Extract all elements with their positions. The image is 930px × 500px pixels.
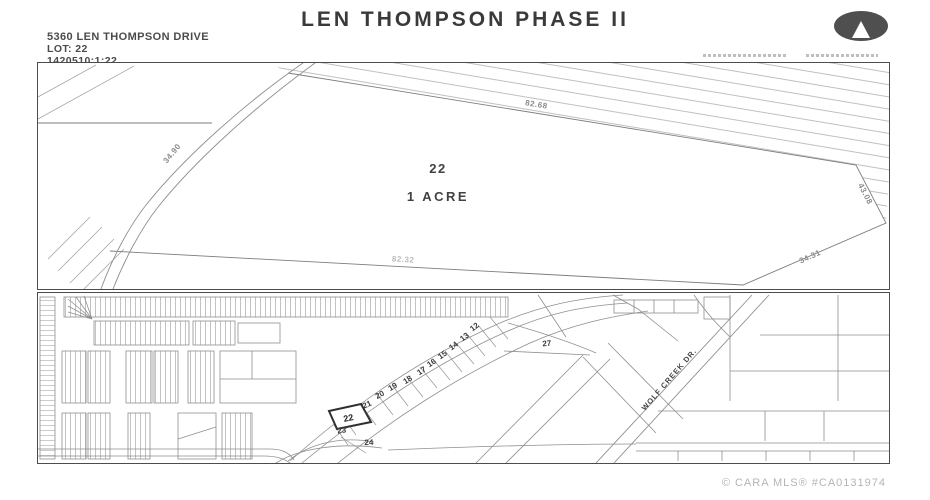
plat-svg: 82.68 43.08 34.31 82.32 34.90 22 1 ACRE bbox=[38, 63, 889, 289]
lot-plat-drawing: 82.68 43.08 34.31 82.32 34.90 22 1 ACRE bbox=[37, 62, 890, 290]
logo-triangle-icon bbox=[852, 21, 870, 38]
map-lot-number: 24 bbox=[364, 438, 374, 447]
map-lot-number: 19 bbox=[387, 380, 400, 393]
brokerage-mountain-logo-icon bbox=[834, 11, 888, 41]
numbered-lot-street bbox=[276, 295, 648, 463]
map-lot-number: 14 bbox=[447, 339, 460, 352]
map-lot-numbers: 12 13 14 15 16 17 18 19 20 21 22 23 24 bbox=[337, 320, 482, 447]
property-address: 5360 LEN THOMPSON DRIVE bbox=[47, 31, 209, 43]
property-lot: LOT: 22 bbox=[47, 43, 209, 55]
subdivision-location-map: 12 13 14 15 16 17 18 19 20 21 22 23 24 2… bbox=[37, 292, 890, 464]
dimension-left-curve: 34.90 bbox=[161, 142, 182, 165]
map-svg: 12 13 14 15 16 17 18 19 20 21 22 23 24 2… bbox=[38, 293, 889, 463]
illegible-fine-print-right bbox=[806, 54, 878, 57]
map-lot-number: 13 bbox=[458, 330, 471, 343]
dimension-bottom: 82.32 bbox=[392, 254, 415, 264]
mls-watermark: © CARA MLS® #CA0131974 bbox=[722, 477, 886, 489]
map-lot-number: 21 bbox=[361, 399, 373, 411]
map-lot-number: 15 bbox=[436, 348, 449, 361]
road-curve-lines bbox=[101, 63, 315, 289]
plat-lot-area: 1 ACRE bbox=[407, 189, 469, 204]
map-lot-number: 23 bbox=[337, 425, 348, 435]
map-lot-number-27: 27 bbox=[542, 339, 552, 349]
hatch-lines-bottom-left bbox=[48, 217, 124, 289]
map-lot-number-22: 22 bbox=[342, 412, 354, 424]
hatched-area-top-right bbox=[270, 63, 889, 223]
dimension-bottom-right: 34.31 bbox=[798, 248, 822, 265]
plat-document-page: LEN THOMPSON PHASE II 5360 LEN THOMPSON … bbox=[0, 0, 930, 500]
illegible-fine-print-left bbox=[703, 54, 787, 57]
page-title: LEN THOMPSON PHASE II bbox=[0, 8, 930, 32]
map-lot-number: 20 bbox=[374, 388, 387, 400]
street-label-wolf-creek: WOLF CREEK DR. bbox=[640, 346, 699, 412]
wolf-creek-road-lines bbox=[596, 295, 769, 463]
lot-divider-lines bbox=[334, 317, 508, 453]
dense-lot-column bbox=[40, 297, 55, 459]
plat-lot-number: 22 bbox=[429, 161, 446, 176]
map-lot-number: 16 bbox=[425, 356, 438, 369]
hatch-lines-top-left bbox=[38, 65, 134, 119]
map-lot-number: 12 bbox=[468, 320, 481, 333]
